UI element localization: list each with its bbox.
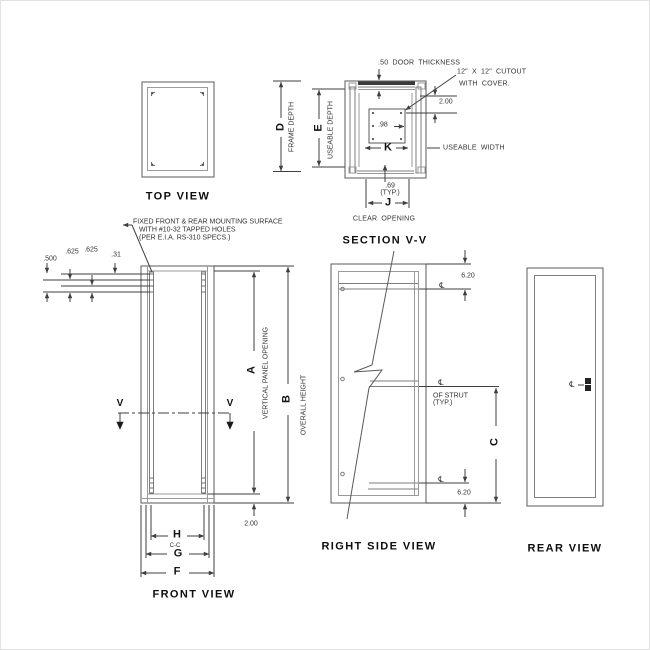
mounting-note-line1: FIXED FRONT & REAR MOUNTING SURFACE — [133, 219, 283, 226]
dim-j-clear-opening: J — [385, 198, 391, 209]
right-side-view-title: RIGHT SIDE VIEW — [321, 542, 436, 553]
top-view-title: TOP VIEW — [146, 192, 211, 203]
cutout-note-line2: WITH COVER. — [459, 81, 510, 88]
section-vv-linework — [345, 69, 457, 208]
front-view-title: FRONT VIEW — [152, 590, 235, 601]
dim-strut-bottom: 6.20 — [457, 490, 471, 497]
dim-f: F — [174, 567, 181, 578]
section-arrow-v-left: V — [117, 399, 124, 409]
dim-hole-spacing-500: .500 — [43, 256, 57, 263]
dim-hole-offset: .98 — [378, 122, 388, 129]
clear-opening-label: CLEAR OPENING — [353, 216, 415, 223]
dim-hole-spacing-31: .31 — [111, 252, 121, 259]
centerline-icon-bottom: ℄ — [438, 476, 443, 484]
rear-view-linework — [527, 268, 603, 506]
top-view-linework — [142, 82, 214, 177]
right-side-view-linework — [331, 250, 501, 519]
dim-d-frame-depth: D — [276, 123, 287, 131]
door-thickness-note: .50 DOOR THICKNESS — [378, 60, 460, 67]
dim-bottom-offset: 2.00 — [244, 521, 258, 528]
mounting-note-line3: (PER E.I.A. RS-310 SPECS.) — [139, 235, 230, 242]
section-arrow-v-right: V — [227, 399, 234, 409]
dim-a-panel-opening: A — [247, 366, 258, 374]
centerline-icon-handle: ℄ — [569, 381, 574, 389]
centerline-icon-mid: ℄ — [438, 379, 443, 387]
section-vv-title: SECTION V-V — [342, 236, 427, 247]
dim-h: H — [173, 530, 181, 541]
dim-g: G — [174, 549, 183, 560]
dim-e-useable-depth: E — [314, 124, 325, 131]
frame-depth-label: FRAME DEPTH — [289, 102, 296, 152]
useable-depth-label: USEABLE DEPTH — [328, 101, 335, 159]
mounting-note-line2: WITH #10-32 TAPPED HOLES — [139, 227, 236, 234]
rear-view-title: REAR VIEW — [528, 544, 603, 555]
useable-width-label: USEABLE WIDTH — [443, 145, 505, 152]
centerline-icon-top: ℄ — [439, 282, 444, 290]
dim-door-to-cutout: 2.00 — [439, 99, 453, 106]
cutout-note-line1: 12" X 12" CUTOUT — [457, 69, 526, 76]
rail-offset-typ: (TYP.) — [380, 190, 399, 197]
vertical-panel-opening-label: VERTICAL PANEL OPENING — [263, 327, 270, 419]
dim-strut-top: 6.20 — [461, 273, 475, 280]
dim-b-overall-height: B — [282, 395, 293, 403]
dim-k-useable-width: K — [384, 143, 392, 154]
of-strut-typ-label: (TYP.) — [433, 400, 452, 407]
dim-c-strut-height: C — [490, 438, 501, 446]
of-strut-label: OF STRUT — [433, 393, 468, 400]
engineering-drawing-canvas: TOP VIEW D FRAME DEPTH E USEABLE DEPTH .… — [0, 0, 650, 650]
dim-hole-spacing-625b: .625 — [84, 247, 98, 254]
dim-rail-offset: .69 — [385, 183, 395, 190]
overall-height-label: OVERALL HEIGHT — [301, 375, 308, 435]
dim-hole-spacing-625a: .625 — [65, 249, 79, 256]
